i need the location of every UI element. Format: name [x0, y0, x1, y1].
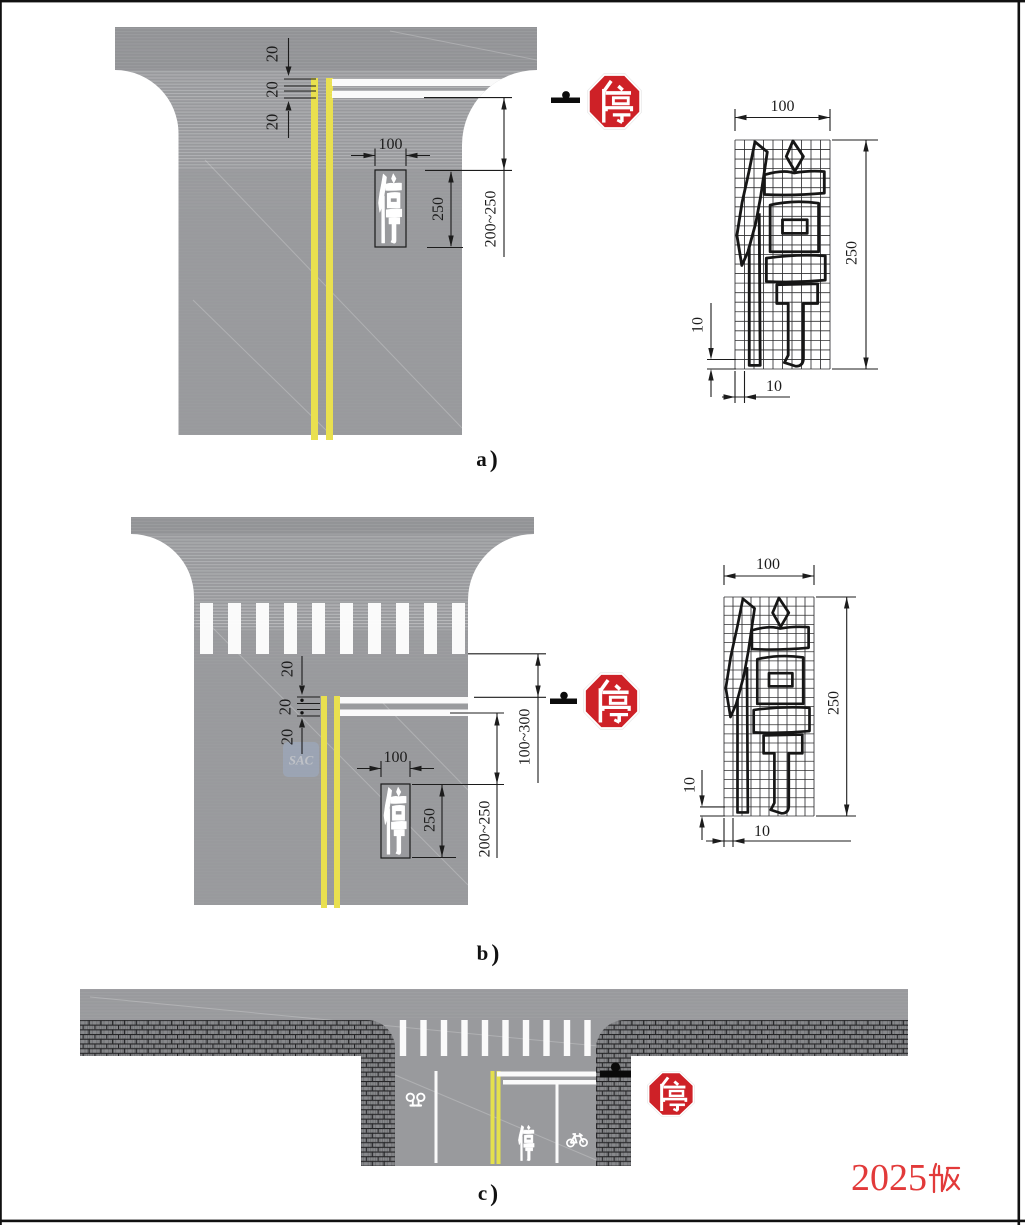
svg-text:10: 10: [690, 317, 707, 333]
svg-text:a): a): [476, 447, 498, 473]
svg-text:10: 10: [682, 777, 699, 793]
svg-text:100~300: 100~300: [517, 709, 534, 766]
svg-text:100: 100: [756, 556, 780, 573]
svg-text:100: 100: [384, 749, 408, 766]
svg-text:20: 20: [278, 729, 297, 746]
svg-text:2025: 2025: [851, 1157, 927, 1199]
svg-text:200~250: 200~250: [483, 191, 500, 248]
svg-text:100: 100: [379, 136, 403, 153]
svg-text:250: 250: [422, 808, 439, 832]
svg-text:20: 20: [263, 46, 282, 63]
svg-text:100: 100: [771, 98, 795, 115]
svg-text:20: 20: [263, 81, 282, 98]
svg-text:10: 10: [766, 378, 782, 395]
svg-text:250: 250: [430, 197, 447, 221]
svg-text:c): c): [478, 1181, 498, 1207]
svg-text:200~250: 200~250: [477, 801, 494, 858]
svg-text:250: 250: [826, 691, 843, 715]
svg-text:SAC: SAC: [289, 753, 314, 768]
svg-text:20: 20: [276, 699, 295, 716]
svg-text:250: 250: [844, 241, 861, 265]
svg-text:10: 10: [754, 823, 770, 840]
svg-text:20: 20: [263, 114, 282, 131]
svg-text:b): b): [477, 941, 500, 967]
svg-text:20: 20: [278, 661, 297, 678]
